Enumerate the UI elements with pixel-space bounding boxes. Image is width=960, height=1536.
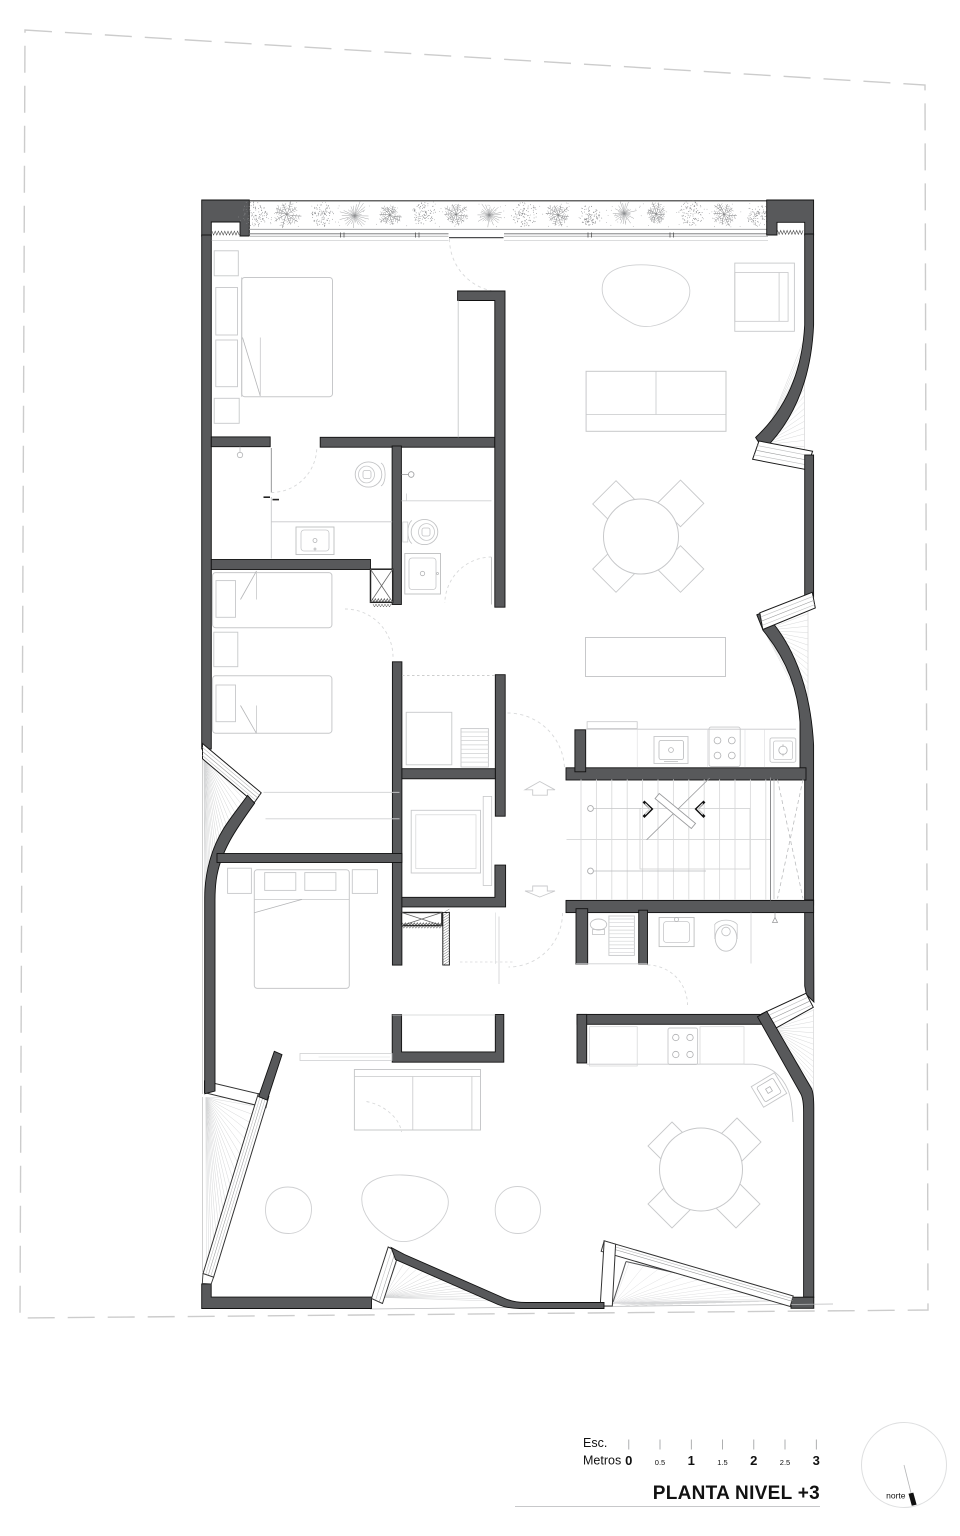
svg-text:3: 3: [813, 1453, 820, 1468]
svg-text:0.5: 0.5: [655, 1458, 665, 1467]
svg-text:0: 0: [625, 1453, 632, 1468]
svg-text:1: 1: [688, 1453, 695, 1468]
svg-text:Metros: Metros: [583, 1454, 621, 1468]
svg-text:2: 2: [750, 1453, 757, 1468]
svg-text:norte: norte: [886, 1491, 906, 1501]
svg-text:2.5: 2.5: [780, 1458, 790, 1467]
svg-text:PLANTA NIVEL +3: PLANTA NIVEL +3: [653, 1483, 820, 1504]
svg-text:Esc.: Esc.: [583, 1436, 607, 1450]
svg-text:1.5: 1.5: [717, 1458, 727, 1467]
